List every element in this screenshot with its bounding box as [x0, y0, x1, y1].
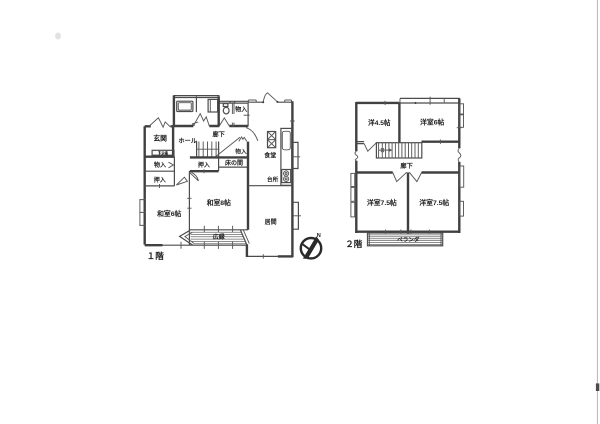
- svg-text:押入: 押入: [198, 161, 210, 169]
- svg-text:居間: 居間: [265, 218, 277, 226]
- svg-text:押入: 押入: [154, 176, 166, 184]
- svg-text:洋室6帖: 洋室6帖: [420, 118, 444, 127]
- svg-text:廊下: 廊下: [400, 162, 412, 170]
- svg-text:和室6帖: 和室6帖: [157, 209, 181, 218]
- svg-text:広縁: 広縁: [213, 233, 225, 241]
- svg-text:物入: 物入: [235, 148, 247, 156]
- svg-text:廊下: 廊下: [213, 131, 225, 139]
- svg-text:洋室7.5帖: 洋室7.5帖: [419, 198, 449, 207]
- svg-text:下足箱: 下足箱: [158, 150, 169, 155]
- svg-text:ベランダ: ベランダ: [397, 236, 420, 244]
- svg-text:２階: ２階: [345, 238, 363, 249]
- svg-text:食堂: 食堂: [263, 152, 276, 160]
- svg-text:台所: 台所: [267, 176, 279, 184]
- svg-text:床の間: 床の間: [225, 159, 243, 167]
- svg-text:ホール: ホール: [178, 138, 197, 145]
- svg-text:洋4.5帖: 洋4.5帖: [368, 118, 391, 127]
- svg-text:洋室7.5帖: 洋室7.5帖: [367, 198, 397, 207]
- svg-text:N: N: [317, 233, 321, 239]
- svg-text:１階: １階: [147, 250, 165, 261]
- svg-text:物入: 物入: [154, 161, 166, 169]
- svg-text:物入: 物入: [235, 105, 247, 113]
- svg-text:和室8帖: 和室8帖: [207, 198, 231, 207]
- svg-text:玄関: 玄関: [153, 134, 167, 143]
